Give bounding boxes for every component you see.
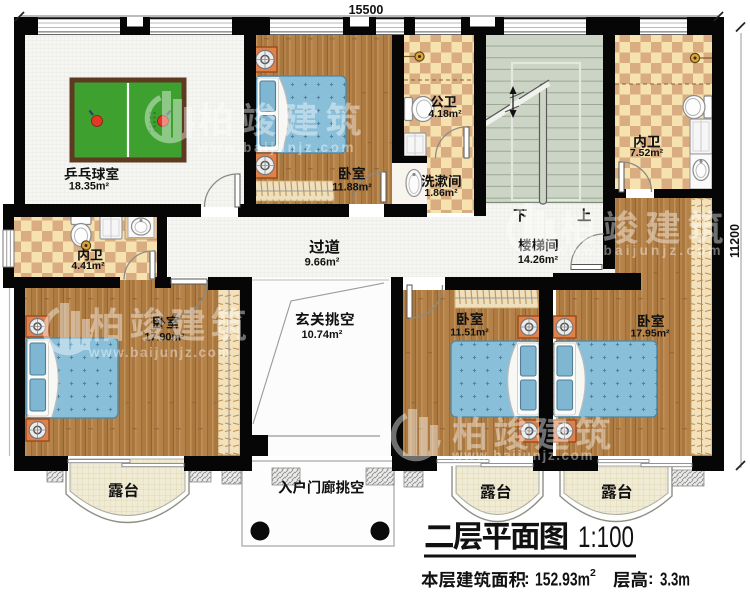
- svg-text:www.baijunjz.com: www.baijunjz.com: [451, 448, 594, 463]
- svg-text:9.66m²: 9.66m²: [305, 257, 340, 269]
- svg-text:15500: 15500: [349, 3, 384, 17]
- svg-text::: :: [648, 569, 654, 588]
- svg-text:10.74m²: 10.74m²: [302, 329, 343, 341]
- svg-text:www.baijunjz.com: www.baijunjz.com: [88, 345, 231, 360]
- svg-text:152.93m: 152.93m: [535, 569, 590, 590]
- svg-text:14.26m²: 14.26m²: [518, 254, 559, 266]
- svg-text:11.51m²: 11.51m²: [450, 327, 489, 339]
- svg-text:3.3m: 3.3m: [660, 569, 690, 590]
- svg-text:www.baijunjz.com: www.baijunjz.com: [197, 140, 356, 155]
- svg-text:1:100: 1:100: [578, 521, 634, 554]
- svg-text:2: 2: [590, 567, 596, 579]
- svg-text:4.18m²: 4.18m²: [428, 108, 462, 120]
- svg-text:1.86m²: 1.86m²: [424, 187, 458, 199]
- svg-text:17.95m²: 17.95m²: [630, 328, 670, 340]
- svg-text:11.88m²: 11.88m²: [332, 182, 372, 194]
- svg-text::: :: [524, 569, 530, 588]
- svg-text:4.41m²: 4.41m²: [71, 260, 105, 272]
- svg-text:18.35m²: 18.35m²: [69, 181, 110, 193]
- svg-text:7.52m²: 7.52m²: [630, 147, 664, 159]
- svg-text:11200: 11200: [728, 224, 742, 258]
- svg-text:www.baijunjz.com: www.baijunjz.com: [555, 243, 724, 258]
